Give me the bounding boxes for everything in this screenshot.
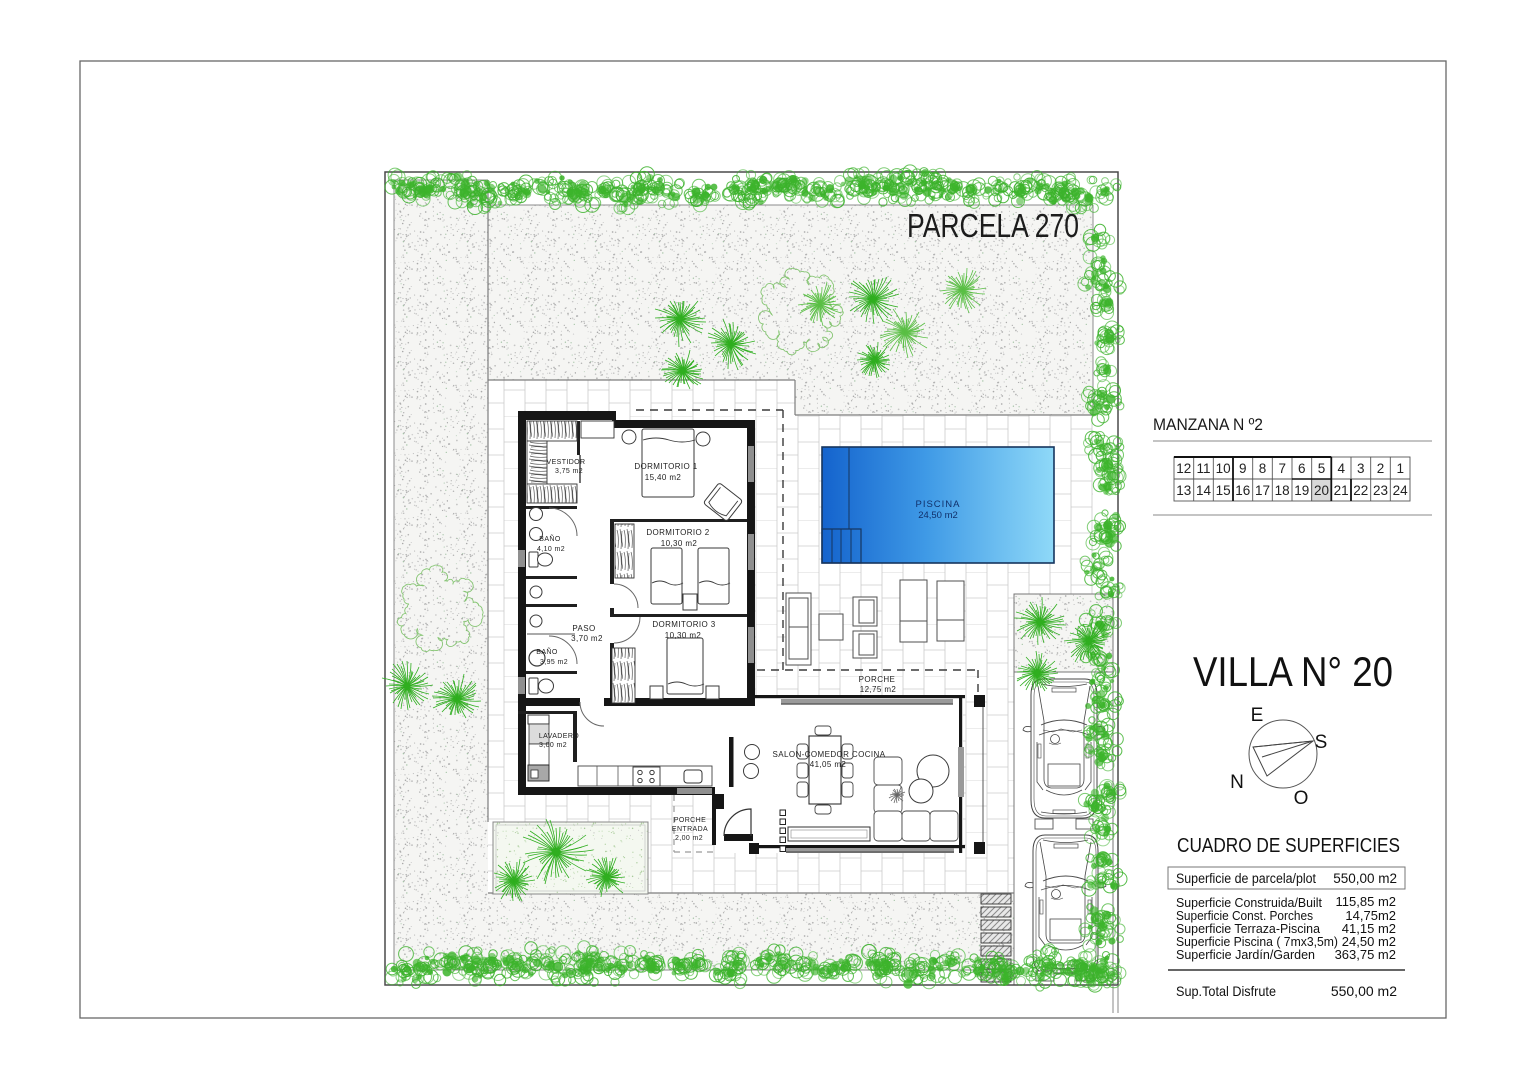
svg-text:41,05 m2: 41,05 m2 [810, 760, 847, 769]
svg-text:4,10 m2: 4,10 m2 [537, 546, 565, 553]
svg-text:7: 7 [1278, 461, 1286, 476]
svg-text:15: 15 [1216, 483, 1231, 498]
svg-text:3: 3 [1357, 461, 1365, 476]
svg-text:PORCHE: PORCHE [674, 817, 706, 824]
svg-text:12: 12 [1176, 461, 1191, 476]
svg-text:19: 19 [1294, 483, 1309, 498]
svg-text:BAÑO: BAÑO [536, 647, 558, 656]
svg-text:13: 13 [1176, 483, 1191, 498]
svg-text:MANZANA N º2: MANZANA N º2 [1153, 415, 1263, 434]
svg-text:1: 1 [1396, 461, 1404, 476]
svg-text:E: E [1251, 705, 1264, 726]
svg-text:9: 9 [1239, 461, 1247, 476]
svg-text:VILLA N° 20: VILLA N° 20 [1193, 648, 1393, 695]
svg-text:DORMITORIO 3: DORMITORIO 3 [652, 620, 715, 629]
svg-text:10: 10 [1216, 461, 1231, 476]
svg-text:6: 6 [1298, 461, 1306, 476]
svg-text:DORMITORIO 1: DORMITORIO 1 [634, 462, 697, 471]
svg-text:N: N [1230, 772, 1244, 793]
svg-text:2,00 m2: 2,00 m2 [675, 835, 703, 842]
svg-text:14: 14 [1196, 483, 1212, 498]
svg-text:10,30 m2: 10,30 m2 [665, 631, 702, 640]
svg-text:3,95 m2: 3,95 m2 [540, 659, 568, 666]
svg-text:550,00 m2: 550,00 m2 [1331, 983, 1397, 999]
svg-text:20: 20 [1314, 483, 1329, 498]
svg-text:Superficie de parcela/plot: Superficie de parcela/plot [1176, 871, 1316, 886]
svg-text:BAÑO: BAÑO [539, 534, 561, 543]
svg-text:22: 22 [1353, 483, 1368, 498]
svg-text:3,75 m2: 3,75 m2 [555, 468, 583, 475]
svg-text:15,40 m2: 15,40 m2 [645, 473, 682, 482]
svg-text:18: 18 [1275, 483, 1290, 498]
svg-text:12,75 m2: 12,75 m2 [860, 685, 897, 694]
svg-text:21: 21 [1334, 483, 1349, 498]
svg-text:2: 2 [1377, 461, 1385, 476]
svg-text:LAVADERO: LAVADERO [539, 733, 579, 740]
svg-text:115,85 m2: 115,85 m2 [1336, 894, 1396, 909]
svg-text:4: 4 [1337, 461, 1345, 476]
svg-text:24: 24 [1393, 483, 1409, 498]
svg-text:11: 11 [1196, 461, 1210, 476]
svg-text:DORMITORIO 2: DORMITORIO 2 [646, 528, 709, 537]
svg-text:5: 5 [1318, 461, 1326, 476]
svg-text:O: O [1294, 788, 1309, 809]
svg-text:Superficie Jardín/Garden: Superficie Jardín/Garden [1176, 947, 1315, 962]
svg-text:PARCELA 270: PARCELA 270 [907, 207, 1079, 244]
svg-text:PORCHE: PORCHE [859, 675, 896, 684]
svg-text:10,30 m2: 10,30 m2 [661, 539, 698, 548]
svg-text:3,00 m2: 3,00 m2 [539, 742, 567, 749]
svg-text:8: 8 [1259, 461, 1267, 476]
svg-text:550,00 m2: 550,00 m2 [1333, 871, 1397, 886]
svg-text:363,75 m2: 363,75 m2 [1335, 947, 1396, 962]
svg-text:SALON-COMEDOR COCINA: SALON-COMEDOR COCINA [773, 750, 886, 759]
svg-text:3,70 m2: 3,70 m2 [571, 634, 603, 643]
svg-text:CUADRO DE SUPERFICIES: CUADRO DE SUPERFICIES [1177, 835, 1400, 857]
svg-text:17: 17 [1255, 483, 1270, 498]
svg-text:PASO: PASO [572, 624, 595, 633]
svg-text:Sup.Total Disfrute: Sup.Total Disfrute [1176, 983, 1276, 999]
svg-text:S: S [1315, 732, 1328, 753]
svg-text:VESTIDOR: VESTIDOR [547, 459, 586, 466]
svg-text:ENTRADA: ENTRADA [672, 826, 708, 833]
svg-text:16: 16 [1235, 483, 1250, 498]
svg-text:23: 23 [1373, 483, 1388, 498]
svg-text:PISCINA: PISCINA [915, 499, 960, 510]
svg-text:24,50 m2: 24,50 m2 [918, 510, 958, 521]
